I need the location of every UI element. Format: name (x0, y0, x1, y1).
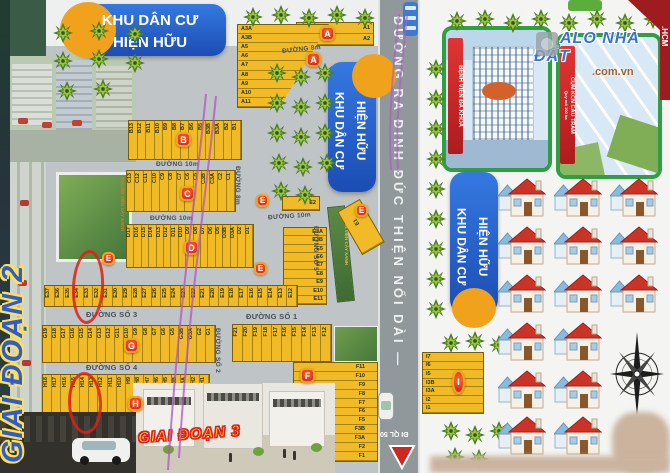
plot-label: G13 (97, 328, 103, 338)
plot-strip: G15 (79, 326, 88, 362)
plot-strip: E17 (239, 286, 249, 306)
plot-label: G5 (170, 328, 176, 335)
plot-label: B3A (215, 123, 221, 134)
banner-residential-mid: KHU DÂN CƯ HIỆN HỮU (328, 62, 376, 192)
plot-strip: G5 (170, 326, 179, 362)
plot-label: F10 (356, 373, 365, 379)
banner-line1: KHU DÂN CƯ (328, 70, 350, 192)
plot-strip: F19 (253, 325, 263, 361)
plot-label: E17 (239, 288, 245, 298)
plot-label: B5 (198, 123, 204, 130)
plot-label: C3A (210, 173, 216, 184)
plot-strip: E29 (123, 286, 133, 306)
plot-label: H9 (126, 377, 132, 384)
plot-label: C6 (185, 173, 191, 180)
tree-icon (290, 126, 312, 148)
plot-label: G7 (152, 328, 158, 335)
banner-line2: HIỆN HỮU (74, 32, 226, 54)
plot-strip: E13 (278, 286, 288, 306)
bus-icon (403, 2, 418, 36)
plot-strip: A11 (238, 98, 328, 107)
plot-label: D13 (156, 227, 162, 237)
plot-label: E20 (210, 288, 216, 298)
plot-label: F19 (253, 327, 259, 336)
plot-label: D15 (141, 227, 147, 237)
truck-icon (568, 0, 602, 11)
plot-label: F1 (359, 453, 365, 459)
plot-strip: E6 (284, 253, 326, 261)
plot-label: C2 (218, 173, 224, 180)
plot-strip: G17 (61, 326, 70, 362)
plot-label: B10 (155, 123, 161, 133)
plot-label: C13 (127, 173, 133, 183)
tree-icon (266, 122, 288, 144)
plot-label: D16 (134, 227, 140, 237)
plot-label: G18 (52, 328, 58, 338)
plot-strip: E19 (219, 286, 229, 306)
banner-line2: HIỆN HỮU (350, 70, 372, 192)
white-car-illustration (72, 438, 130, 462)
plot-label: I6 (426, 362, 431, 368)
plot-strip: F15 (292, 325, 302, 361)
plot-label: C7 (177, 173, 183, 180)
plot-strip: E5 (284, 245, 326, 253)
car-icon (378, 392, 394, 420)
plot-label: E31 (103, 288, 109, 298)
plot-label: H11 (108, 377, 114, 387)
block-badge-a2: A (306, 52, 321, 67)
plot-label: A5 (241, 44, 248, 50)
plot-label: G15 (79, 328, 85, 338)
corner-ribbon-shape (628, 0, 670, 100)
plot-strip: E8 (284, 270, 326, 278)
plot-strip: G14 (88, 326, 97, 362)
plot-label: H18 (43, 377, 49, 387)
plot-label: G17 (61, 328, 67, 338)
plot-label: G11 (115, 328, 121, 338)
plot-label: D8 (193, 227, 199, 234)
plot-strip: G6 (161, 326, 170, 362)
plot-strip: E37 (45, 286, 55, 306)
plot-label: E25 (162, 288, 168, 298)
plot-strip: E30 (113, 286, 123, 306)
street-label-so1: ĐƯỜNG SỐ 1 (246, 312, 297, 321)
plot-strip: E28 (132, 286, 142, 306)
industrial-label: CỤM KCN CẦU TRÀM (569, 77, 575, 134)
street-label-10m-2: ĐƯỜNG 10m (150, 215, 193, 222)
plot-label: B13 (129, 123, 135, 133)
plot-label: B1 (232, 123, 238, 130)
plot-label: B12 (137, 123, 143, 133)
plot-label: F20 (243, 327, 249, 336)
plot-strip: E21 (200, 286, 210, 306)
plot-label: I5 (426, 371, 431, 377)
block-badge-e2: E (256, 194, 269, 207)
street-label-10m-3: ĐƯỜNG 10m (268, 212, 311, 222)
plot-strip: A10 (238, 89, 328, 98)
plot-label: B3B (206, 123, 212, 134)
plot-label: E24 (171, 288, 177, 298)
street-label-so2: ĐƯỜNG SỐ 2 (214, 328, 221, 373)
plot-label: E13 (278, 288, 284, 298)
plot-label: E22 (191, 288, 197, 298)
plot-label: G16 (70, 328, 76, 338)
plot-label: E35 (65, 288, 71, 298)
plot-strip: B12 (138, 121, 147, 159)
plot-label: F11 (356, 364, 365, 370)
plot-label: G2 (197, 328, 203, 335)
plot-label: H16 (62, 377, 68, 387)
plot-label: E8 (316, 271, 323, 277)
banner-residential-right: KHU DÂN CƯ HIỆN HỮU (450, 172, 498, 314)
plot-strip: E24 (171, 286, 181, 306)
plot-label: D5 (215, 227, 221, 234)
plot-label: A3A (241, 26, 252, 32)
plot-label: I3B (426, 380, 435, 386)
plot-strip: G13 (97, 326, 106, 362)
plot-label: G8 (143, 328, 149, 335)
street-label-8m-side: ĐƯỜNG 8m (234, 166, 241, 205)
plot-label: B11 (146, 123, 152, 133)
plot-strip: G16 (70, 326, 79, 362)
plot-label: D12 (163, 227, 169, 237)
block-badge-f: F (300, 368, 315, 383)
plot-label: D11 (171, 227, 177, 237)
plot-strip: G2 (197, 326, 206, 362)
phase2-vertical-title: GIAI ĐOẠN 2 (0, 148, 30, 463)
plot-label: G3A (188, 328, 194, 339)
plot-strip: I6 (423, 362, 483, 371)
plot-label: E12 (288, 288, 294, 298)
plot-label: F3B (355, 426, 365, 432)
plot-strip: E18 (229, 286, 239, 306)
block-badge-c: C (180, 186, 195, 201)
plot-strip: F13 (311, 325, 321, 361)
plot-label: F18 (263, 327, 269, 336)
plot-strip: E12 (287, 286, 297, 306)
block-badge-a: A (320, 26, 335, 41)
street-label-so5: ĐƯỜNG SỐ 5 (312, 226, 319, 271)
plot-strip: C8 (169, 171, 177, 211)
plot-strip: G8 (143, 326, 152, 362)
greenway-label: KHUÔN VIÊN CÂY XANH (344, 212, 349, 265)
plot-label: C10 (152, 173, 158, 183)
plot-label: D1 (245, 227, 251, 234)
plot-strip: A3A (238, 25, 328, 34)
block-badge-b: B (176, 132, 191, 147)
plot-strip: E3B (284, 236, 326, 244)
plot-label: E2 (309, 200, 316, 206)
street-label-so4: ĐƯỜNG SỐ 4 (86, 363, 137, 372)
plot-label: D9 (185, 227, 191, 234)
plot-strip: C10 (152, 171, 160, 211)
plot-label: A8 (241, 72, 248, 78)
plot-label: F13 (312, 327, 318, 336)
plot-strip: E7 (284, 262, 326, 270)
compass-icon (608, 330, 666, 423)
banner-residential-top: KHU DÂN CƯ HIỆN HỮU (74, 4, 226, 56)
plot-label: A9 (241, 81, 248, 87)
green-patch (334, 326, 378, 362)
plot-strip: B3A (215, 121, 224, 159)
plot-label: D3A (230, 227, 236, 238)
plot-label: H12 (98, 377, 104, 387)
plot-label: E27 (142, 288, 148, 298)
plot-label: E14 (268, 288, 274, 298)
plot-label: G6 (161, 328, 167, 335)
plot-label: D7 (200, 227, 206, 234)
plot-label: C3B (201, 173, 207, 184)
plot-strip: F14 (302, 325, 312, 361)
block-badge-e-left: E (102, 252, 115, 265)
plot-strip: C11 (144, 171, 152, 211)
block-badge-g: G (124, 338, 139, 353)
plot-label: G12 (106, 328, 112, 338)
plot-label: D2 (237, 227, 243, 234)
block-badge-d: D (184, 240, 199, 255)
block-badge-i: I (452, 370, 465, 394)
plot-strip: G3B (179, 326, 188, 362)
plot-label: B8 (172, 123, 178, 130)
plot-label: C5 (193, 173, 199, 180)
plot-label: F14 (302, 327, 308, 336)
plot-label: E19 (220, 288, 226, 298)
plot-label: C1 (226, 173, 232, 180)
plot-label: B2 (224, 123, 230, 130)
photo-table-edge (430, 456, 670, 473)
plot-strip: B9 (163, 121, 172, 159)
plot-label: E9 (316, 279, 323, 285)
plot-label: F21 (233, 327, 239, 336)
corner-ribbon: .HCM (628, 0, 670, 100)
plot-strip: F20 (243, 325, 253, 361)
banner-line2: HIỆN HỮU (472, 180, 494, 314)
plot-label: I7 (426, 354, 431, 360)
plot-strip: E26 (152, 286, 162, 306)
plot-label: F7 (359, 400, 365, 406)
plot-strip: C3B (202, 171, 210, 211)
plot-label: E18 (229, 288, 235, 298)
plot-strip: E15 (258, 286, 268, 306)
plot-strip: B1 (232, 121, 241, 159)
plot-strip: E16 (248, 286, 258, 306)
plot-label: B9 (163, 123, 169, 130)
plot-strip: E22 (190, 286, 200, 306)
plot-label: E11 (314, 296, 323, 302)
plot-label: I3A (426, 388, 435, 394)
plot-label: I2 (426, 397, 431, 403)
plot-strip: E36 (55, 286, 65, 306)
plot-strip: E25 (161, 286, 171, 306)
plot-strip: A8 (238, 71, 328, 80)
road-direction-arrow (388, 444, 416, 473)
camera-icon (536, 32, 558, 56)
block-badge-h: H (128, 396, 143, 411)
plot-strip: E3A (284, 228, 326, 236)
plot-strip: E27 (142, 286, 152, 306)
plot-label: D6 (208, 227, 214, 234)
plot-strip: E20 (210, 286, 220, 306)
plot-strip: E2 (283, 197, 319, 210)
park-label: KHUÔN VIÊN CÂY XANH (120, 178, 125, 231)
plot-label: D3B (222, 227, 228, 238)
plot-label: C9 (160, 173, 166, 180)
block-badge-e1: E (355, 204, 368, 217)
plot-strip: E23 (181, 286, 191, 306)
plot-strip: I2 (423, 396, 483, 405)
plot-label: F9 (359, 382, 365, 388)
plot-label: C12 (135, 173, 141, 183)
plot-label: F15 (292, 327, 298, 336)
plot-label: E21 (200, 288, 206, 298)
plot-label: E26 (152, 288, 158, 298)
plot-label: H10 (117, 377, 123, 387)
block-e2: E2 (282, 196, 320, 211)
plot-label: E16 (249, 288, 255, 298)
plot-label: E15 (258, 288, 264, 298)
block-f-row: F21F20F19F18F17F16F15F14F13F12 (232, 324, 332, 362)
plot-label: G1 (206, 328, 212, 335)
plot-label: G14 (88, 328, 94, 338)
plot-label: G3B (179, 328, 185, 339)
street-label-10m-1: ĐƯỜNG 10m (156, 161, 199, 168)
hospital-ribbon: BỆNH VIỆN ĐA KHOA (448, 38, 463, 154)
block-badge-e-right: E (254, 262, 267, 275)
plot-strip: I7 (423, 353, 483, 362)
plot-label: D17 (126, 227, 132, 237)
plot-strip: A3B (238, 34, 328, 43)
plot-label: E37 (45, 288, 51, 298)
tree-icon (292, 156, 314, 178)
plot-label: A1 (363, 25, 370, 31)
plot-label: H17 (52, 377, 58, 387)
plot-label: A10 (241, 90, 251, 96)
plot-label: B6 (189, 123, 195, 130)
plot-label: F5 (359, 417, 365, 423)
plot-label: F16 (282, 327, 288, 336)
plot-label: E29 (123, 288, 129, 298)
plot-strip: G19 (43, 326, 52, 362)
plot-label: D14 (148, 227, 154, 237)
exit-road-label: ĐI QL 50 (380, 430, 408, 437)
plot-strip: A9 (238, 80, 328, 89)
plot-label: F6 (359, 408, 365, 414)
plot-strip: F18 (262, 325, 272, 361)
tree-icon (290, 96, 312, 118)
plot-strip: G3A (188, 326, 197, 362)
plot-label: F2 (359, 444, 365, 450)
plot-label: C8 (168, 173, 174, 180)
plot-strip: F16 (282, 325, 292, 361)
plot-label: E23 (181, 288, 187, 298)
plot-label: G9 (133, 328, 139, 335)
plot-label: E36 (55, 288, 61, 298)
plot-label: G10 (124, 328, 130, 338)
plot-label: E1 (353, 217, 362, 226)
plot-strip: F12 (321, 325, 331, 361)
plot-strip: E31 (103, 286, 113, 306)
plot-label: A6 (241, 53, 248, 59)
plot-strip: B3B (206, 121, 215, 159)
plot-label: A7 (241, 62, 248, 68)
plot-strip: F21 (233, 325, 243, 361)
plot-label: A11 (241, 99, 251, 105)
plot-strip: G18 (52, 326, 61, 362)
plot-label: F12 (322, 327, 328, 336)
plot-label: C11 (143, 173, 149, 183)
plot-strip: I1 (423, 404, 483, 413)
plot-strip: B11 (146, 121, 155, 159)
plot-label: F17 (273, 327, 279, 336)
existing-residential-photo (8, 56, 136, 162)
plot-label: I1 (426, 405, 431, 411)
plot-label: D10 (178, 227, 184, 237)
plot-strip: G7 (152, 326, 161, 362)
plot-strip: F17 (272, 325, 282, 361)
banner-line1: KHU DÂN CƯ (74, 10, 226, 32)
plot-label: E30 (113, 288, 119, 298)
plot-label: B7 (180, 123, 186, 130)
plot-label: F3A (355, 435, 365, 441)
plot-label: F8 (359, 391, 365, 397)
plot-label: E10 (313, 288, 323, 294)
banner-line1: KHU DÂN CƯ (450, 180, 472, 314)
plot-label: A3B (241, 35, 252, 41)
plot-strip: D1 (246, 225, 253, 267)
plot-label: A2 (363, 36, 370, 42)
plot-label: E28 (133, 288, 139, 298)
plot-label: G19 (43, 328, 49, 338)
corner-ribbon-text: .HCM (660, 26, 669, 46)
tree-icon (268, 152, 290, 174)
plot-strip: E14 (268, 286, 278, 306)
land-plot-map-photo: ĐƯỜNG RA ĐINH ĐỨC THIỆN NỐI DÀI — ĐI QL … (0, 0, 670, 473)
